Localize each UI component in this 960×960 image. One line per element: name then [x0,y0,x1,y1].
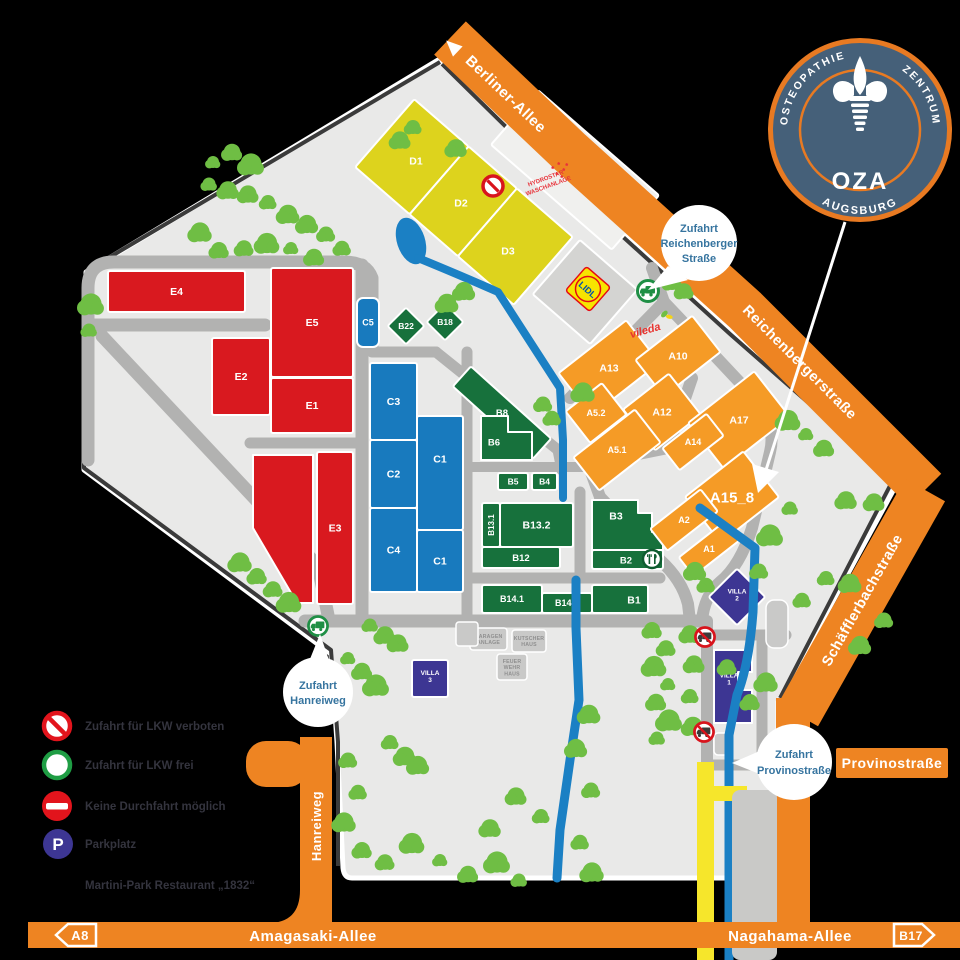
truck-allowed-icon-hanreiweg [308,616,327,635]
building-label-b6: B6 [488,437,500,448]
building-label-b4: B4 [539,476,550,486]
building-label-b22: B22 [398,321,414,331]
legend-label-4: Martini-Park Restaurant „1832“ [85,880,255,892]
building-e1: E1 [271,378,353,433]
restaurant-icon [643,550,661,568]
building-label-b14-1: B14.1 [500,594,524,604]
oza-badge: OSTEOPATHIE ZENTRUM AUGSBURG OZA [768,38,952,222]
building-label-a10: A10 [668,351,687,363]
small-building-feuerwehr-haus: FEUERWEHRHAUS [497,654,527,680]
building-label-e3: E3 [329,523,342,535]
building-label-a17: A17 [729,415,748,427]
building-c2: C2 [370,440,417,508]
martini-park-site-map: E4E5E2E1E3C5C3C2C4C1C1B22B18B8B6B5B4B13.… [0,0,960,960]
building-c5: C5 [357,298,379,347]
building-label-a5-1: A5.1 [607,445,626,455]
a8-sign-label: A8 [71,928,89,943]
building-label-a1: A1 [703,544,715,554]
building-b14-1: B14.1 [482,585,542,613]
small-building-annex [456,622,478,646]
building-e5: E5 [271,268,353,377]
street-label-nagahama: Nagahama-Allee [728,928,852,945]
building-label-a5-2: A5.2 [586,408,605,418]
legend-label-0: Zufahrt für LKW verboten [85,721,224,733]
no-trucks-icon [44,713,70,739]
building-b1: B1 [592,585,648,613]
building-label-e1: E1 [306,400,319,412]
building-c3: C3 [370,363,417,440]
building-label-c3: C3 [387,396,401,408]
building-e4: E4 [108,271,245,312]
building-label-d2: D2 [454,198,468,210]
small-building-parking-villa2 [766,600,788,648]
legend-label-3: Parkplatz [85,839,136,851]
building-label-a2: A2 [678,515,690,525]
building-label-a14: A14 [685,437,702,447]
building-label-b2: B2 [620,555,632,566]
building-e2: E2 [212,338,270,415]
building-label-b18: B18 [437,317,453,327]
building-label-b13-2: B13.2 [522,520,550,532]
building-label-e5: E5 [306,317,319,329]
svg-text:P: P [52,835,63,854]
small-building-kutscher-haus: KUTSCHERHAUS [512,630,546,652]
building-b13-1: B13.1 [482,503,500,547]
building-label-a15-8: A15_8 [710,489,754,506]
building-b14-2: B14.2 [542,593,592,613]
small-building-label-feuerwehr-haus: FEUERWEHRHAUS [503,659,522,677]
svg-text:Zufahrt: Zufahrt [775,749,813,761]
svg-text:Zufahrt: Zufahrt [299,680,337,692]
building-b4: B4 [532,473,557,490]
building-label-c1-south: C1 [433,556,447,568]
no-trucks-icon-villa [695,627,714,646]
building-label-b5: B5 [508,476,519,486]
map-canvas: E4E5E2E1E3C5C3C2C4C1C1B22B18B8B6B5B4B13.… [0,0,960,960]
hanreiweg-arm [246,741,308,787]
no-trucks-icon-provino [694,722,713,741]
building-label-c2: C2 [387,469,401,481]
svg-text:Hanreiweg: Hanreiweg [290,695,346,707]
building-b5: B5 [498,473,528,490]
no-through-icon [42,791,72,821]
building-b12: B12 [482,547,560,568]
building-label-b1: B1 [627,595,641,607]
badge-oza-label: OZA [832,168,889,195]
building-label-c5: C5 [362,318,374,328]
legend-label-1: Zufahrt für LKW frei [85,760,194,772]
building-label-c4: C4 [387,545,401,557]
svg-text:Straße: Straße [682,253,716,265]
building-label-d1: D1 [409,156,423,168]
building-label-a13: A13 [599,363,618,375]
building-label-b12: B12 [512,553,529,564]
street-label-hanreiweg: Hanreiweg [309,791,324,861]
svg-text:Zufahrt: Zufahrt [680,223,718,235]
building-label-d3: D3 [501,246,515,258]
building-c4: C4 [370,508,417,592]
building-c1-south: C1 [417,530,463,592]
street-label-amagasaki: Amagasaki-Allee [249,928,377,945]
building-label-a12: A12 [652,407,671,419]
legend-label-2: Keine Durchfahrt möglich [85,801,226,813]
b17-sign-label: B17 [899,929,923,943]
provinostrasse-sign-label: Provinostraße [842,755,943,771]
no-entry-icon [483,176,503,196]
building-villa-3: VILLA3 [412,660,448,697]
building-label-b3: B3 [609,511,623,523]
building-c1-north: C1 [417,416,463,530]
trucks-allowed-icon [44,752,70,778]
svg-text:Reichenberger: Reichenberger [660,238,738,250]
building-label-b13-1: B13.1 [487,514,496,536]
parking-icon: P [43,829,73,859]
building-b13-2: B13.2 [500,503,573,547]
svg-text:Provinostraße: Provinostraße [757,765,831,777]
building-e3: E3 [317,452,353,604]
building-label-e4: E4 [170,286,183,298]
building-label-c1-north: C1 [433,454,447,466]
building-label-e2: E2 [235,371,248,383]
